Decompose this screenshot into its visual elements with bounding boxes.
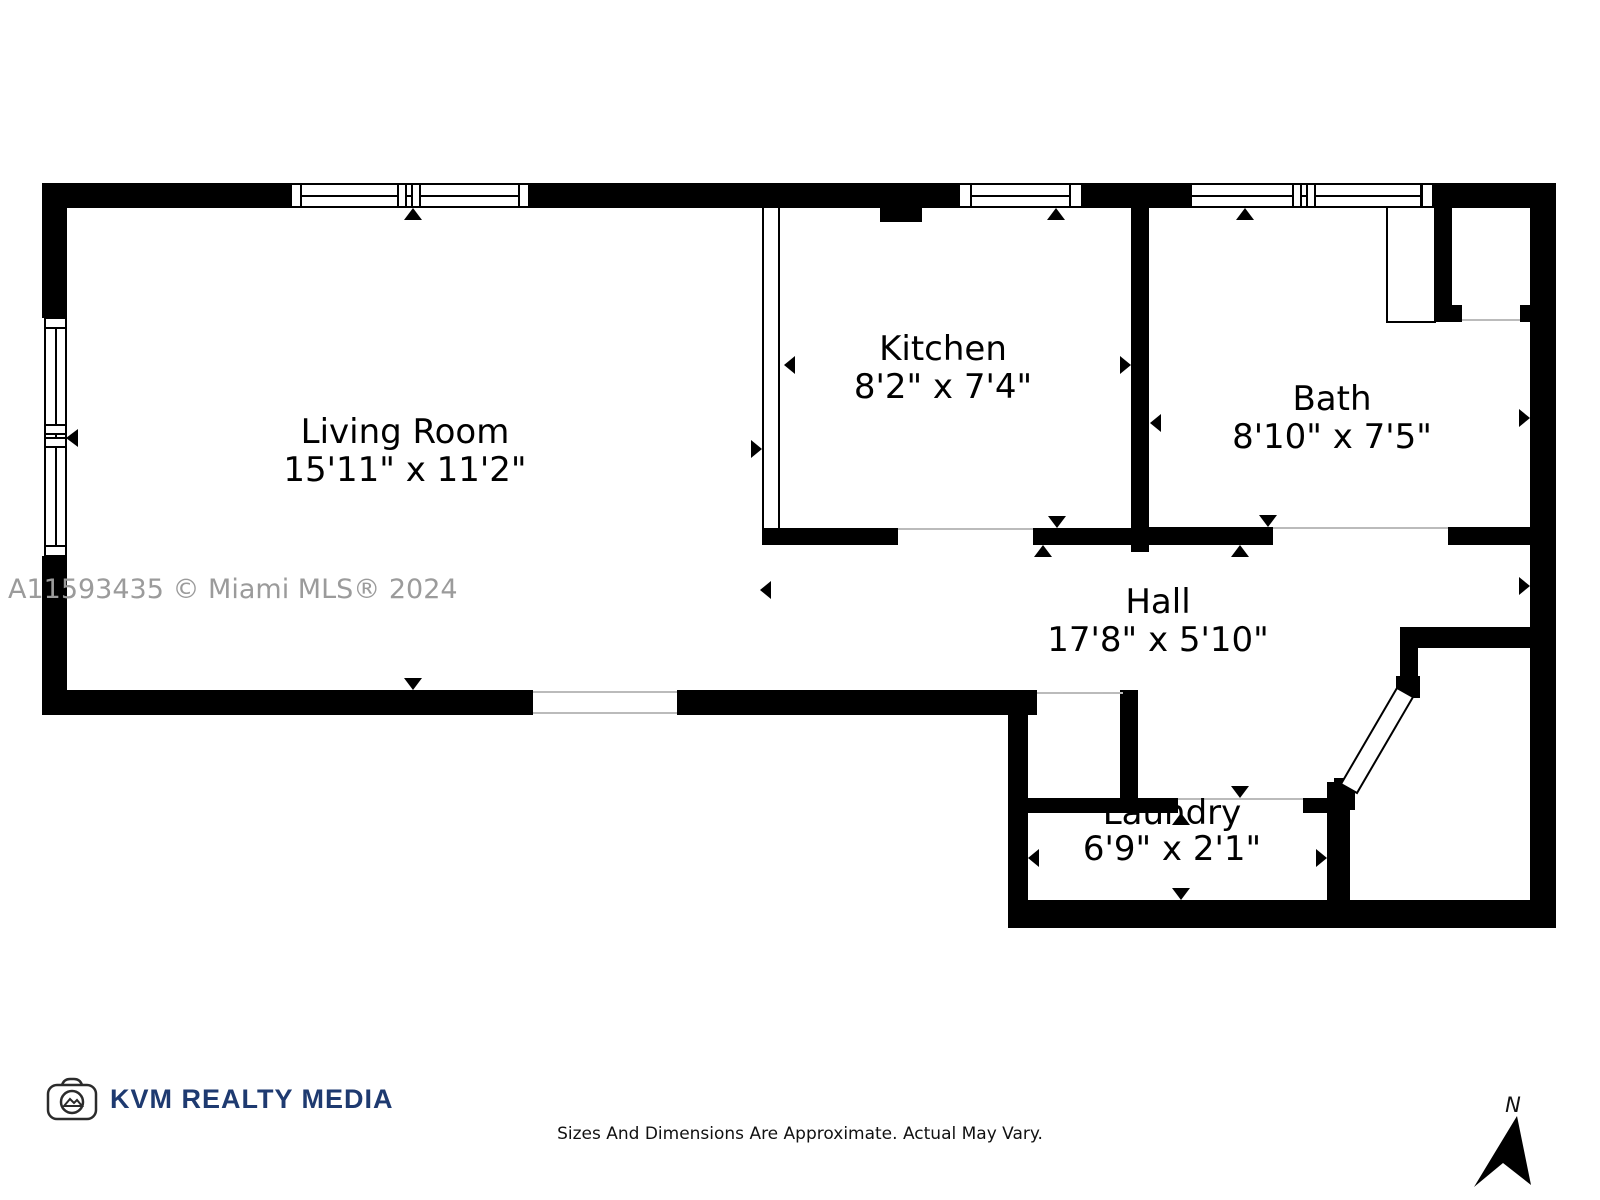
dimension-arrow [1259,515,1277,527]
wall-segment [530,183,958,208]
window [959,184,1082,207]
wall-segment [1131,208,1149,552]
room-dims-kitchen: 8'2" x 7'4" [854,367,1032,407]
brand-name: KVM REALTY MEDIA [110,1084,394,1115]
wall-segment [1448,527,1530,545]
floor-plan: Living Room 15'11" x 11'2" Kitchen 8'2" … [0,0,1600,1200]
door-leaf [1341,688,1413,793]
wall-segment [1400,627,1530,648]
dimension-arrow [1047,208,1065,220]
dimension-arrow [1048,516,1066,528]
dimension-arrow [784,356,795,374]
window [1191,184,1433,207]
dimension-arrow [1172,888,1190,900]
wall-segment [1148,527,1273,545]
wall-segment [1033,528,1133,545]
window [45,318,66,556]
watermark-text: A11593435 © Miami MLS® 2024 [8,574,458,605]
room-label-laundry: Laundry [1103,793,1242,833]
dimension-arrows [66,208,1530,900]
windows [45,184,1433,556]
dimension-arrow [1236,208,1254,220]
north-label: N [1505,1093,1521,1117]
wall-segment [677,690,1037,715]
wall-segment [762,208,764,528]
room-dims-living-room: 15'11" x 11'2" [283,450,526,490]
room-label-hall: Hall [1125,582,1190,622]
dimension-arrow [404,678,422,690]
room-label-bath: Bath [1292,379,1371,419]
dimension-arrow [1120,356,1131,374]
wall-segment [1120,690,1138,800]
room-dims-hall: 17'8" x 5'10" [1047,620,1269,660]
dimension-arrow [66,429,78,447]
dimension-arrow [1519,409,1530,427]
room-dims-bath: 8'10" x 7'5" [1232,417,1432,457]
wall-segment [1452,305,1462,322]
room-dims-laundry: 6'9" x 2'1" [1083,829,1261,869]
wall-segment [778,208,780,528]
dimension-arrow [1316,849,1327,867]
walls [42,183,1556,928]
wall-segment [42,183,290,208]
wall-segment [1083,183,1190,208]
wall-segment [1530,183,1556,928]
wall-segment [880,208,922,222]
disclaimer-text: Sizes And Dimensions Are Approximate. Ac… [0,1124,1600,1144]
dimension-arrow [1028,849,1039,867]
window [291,184,529,207]
wall-segment [1303,798,1327,813]
dimension-arrow [751,440,762,458]
wall-segment [1008,715,1028,928]
wall-segment [1008,900,1556,928]
door-leaf [1387,207,1435,322]
wall-segment [42,183,67,318]
wall-segment [762,528,898,545]
dimension-arrow [1150,414,1161,432]
wall-segment [1435,207,1452,322]
wall-segment [42,690,533,715]
room-label-living-room: Living Room [301,412,510,452]
dimension-arrow [1231,545,1249,557]
dimension-arrow [404,208,422,220]
dimension-arrow [1034,545,1052,557]
dimension-arrow [760,581,771,599]
room-label-kitchen: Kitchen [879,329,1007,369]
brand-logo: KVM REALTY MEDIA [46,1076,394,1122]
wall-segment [1520,305,1530,322]
camera-icon [46,1076,98,1122]
dimension-arrow [1519,577,1530,595]
